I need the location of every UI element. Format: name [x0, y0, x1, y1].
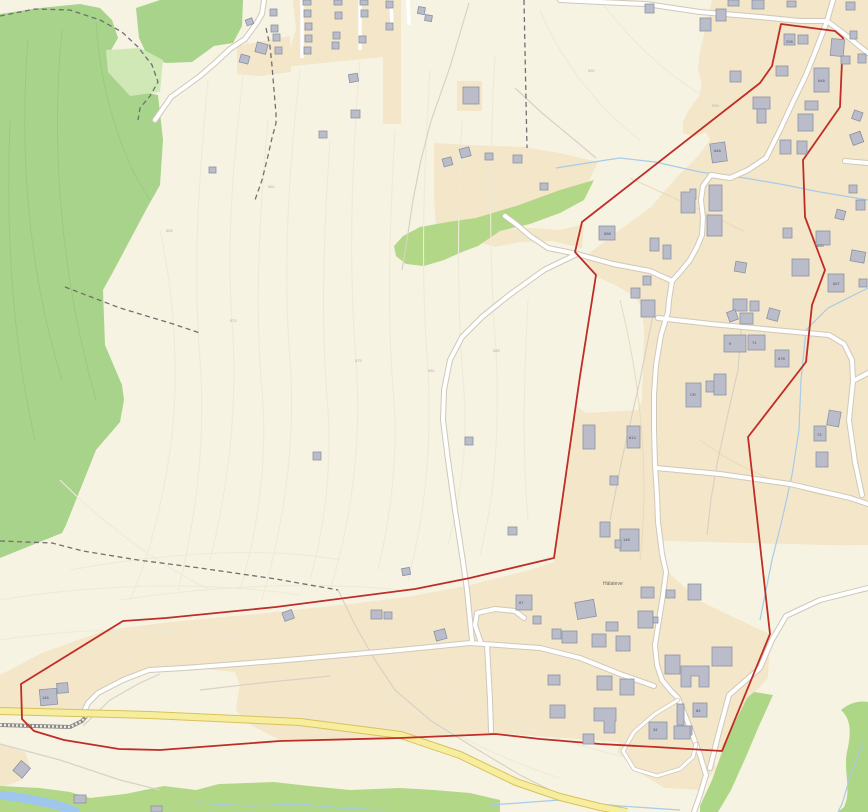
svg-text:595: 595	[712, 103, 719, 108]
svg-text:84: 84	[696, 708, 701, 713]
svg-text:658: 658	[604, 231, 611, 236]
svg-text:208: 208	[786, 39, 793, 44]
svg-text:148: 148	[623, 537, 630, 542]
svg-text:648: 648	[818, 78, 825, 83]
svg-text:657: 657	[833, 281, 840, 286]
svg-text:580: 580	[428, 368, 435, 373]
svg-text:565: 565	[166, 228, 173, 233]
svg-text:813: 813	[629, 435, 636, 440]
svg-text:CR: CR	[690, 392, 696, 397]
svg-text:648: 648	[714, 148, 721, 153]
svg-text:575: 575	[355, 358, 362, 363]
svg-text:650: 650	[817, 243, 824, 248]
svg-text:146: 146	[42, 695, 49, 700]
svg-text:34: 34	[653, 727, 658, 732]
svg-text:585: 585	[493, 348, 500, 353]
svg-text:71: 71	[752, 340, 757, 345]
svg-text:560: 560	[268, 184, 275, 189]
svg-text:590: 590	[588, 68, 595, 73]
svg-text:678: 678	[778, 356, 785, 361]
svg-text:570: 570	[230, 318, 237, 323]
svg-text:Hálateve: Hálateve	[603, 581, 623, 587]
svg-text:73: 73	[817, 432, 822, 437]
svg-text:67: 67	[519, 600, 524, 605]
